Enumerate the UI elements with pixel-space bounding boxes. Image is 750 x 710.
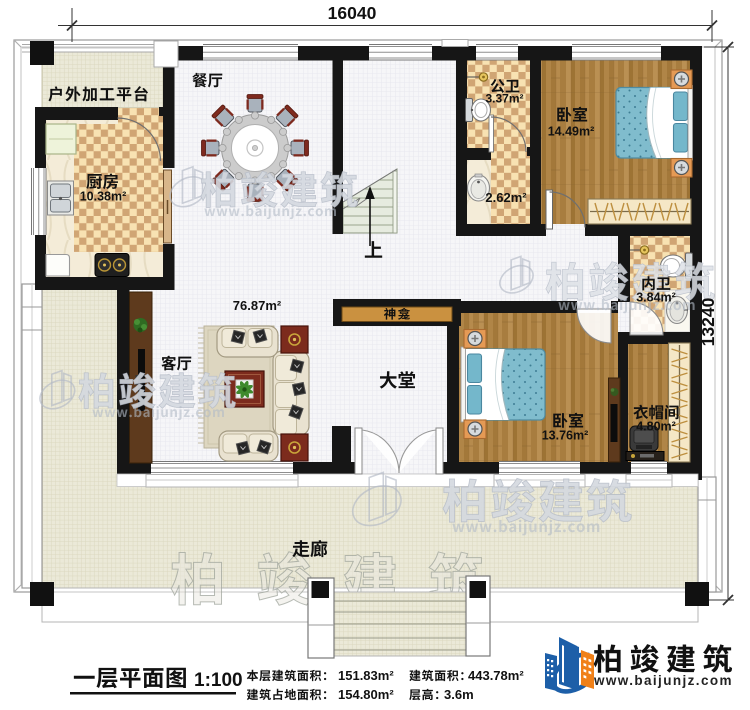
svg-text:3.6m: 3.6m xyxy=(444,687,474,702)
svg-text:151.83m²: 151.83m² xyxy=(338,668,394,683)
svg-text:16040: 16040 xyxy=(328,3,377,23)
svg-text:4.80m²: 4.80m² xyxy=(636,420,676,434)
svg-text:2.62m²: 2.62m² xyxy=(485,190,527,205)
svg-text:443.78m²: 443.78m² xyxy=(468,668,524,683)
svg-text:14.49m²: 14.49m² xyxy=(548,125,595,139)
svg-text:13240: 13240 xyxy=(698,297,718,346)
svg-text:76.87m²: 76.87m² xyxy=(233,298,282,313)
svg-text:www.baijunjz.com: www.baijunjz.com xyxy=(593,673,733,688)
svg-text:1:100: 1:100 xyxy=(194,670,243,691)
svg-text:3.37m²: 3.37m² xyxy=(485,92,523,106)
svg-text:3.84m²: 3.84m² xyxy=(636,291,676,305)
svg-text:13.76m²: 13.76m² xyxy=(542,429,589,443)
svg-text:154.80m²: 154.80m² xyxy=(338,687,394,702)
svg-text:10.38m²: 10.38m² xyxy=(80,190,127,204)
